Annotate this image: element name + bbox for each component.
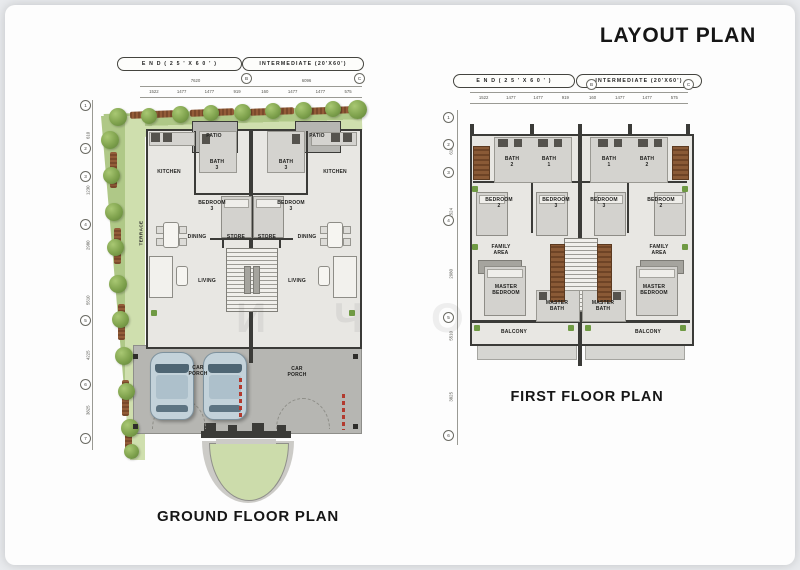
room-label-bedroom3: BEDROOM 3 bbox=[542, 197, 570, 210]
wall-stub bbox=[530, 124, 534, 136]
wardrobe bbox=[672, 146, 689, 180]
tree-icon bbox=[107, 239, 124, 256]
grid-bubble-4: 4 bbox=[443, 215, 454, 226]
bath-fixture bbox=[538, 139, 548, 147]
bath-fixture bbox=[554, 139, 562, 147]
interior-wall bbox=[194, 193, 251, 195]
room-label-master-bedroom: MASTER BEDROOM bbox=[640, 284, 668, 297]
balcony-slab bbox=[585, 344, 685, 360]
dimension-row-segments: 15221477147791916014771477575 bbox=[470, 95, 688, 101]
chair bbox=[179, 226, 187, 234]
room-label-store: STORE bbox=[258, 234, 276, 240]
tree-icon bbox=[348, 100, 367, 119]
bath-fixture bbox=[614, 139, 622, 147]
grid-bubble-2: 2 bbox=[443, 139, 454, 150]
dining-table bbox=[327, 222, 343, 248]
entrance-wall bbox=[252, 423, 264, 432]
tv-console bbox=[244, 266, 251, 294]
grid-bubble-b: B bbox=[586, 79, 597, 90]
grid-bubble-3: 3 bbox=[443, 167, 454, 178]
tree-icon bbox=[124, 444, 139, 459]
wardrobe bbox=[550, 244, 565, 302]
room-label-master-bath: MASTER BATH bbox=[592, 300, 614, 313]
room-label-bath3: BATH 3 bbox=[279, 159, 293, 172]
interior-wall bbox=[306, 131, 308, 195]
sofa bbox=[333, 256, 357, 298]
room-label-store: STORE bbox=[227, 234, 245, 240]
plant-icon bbox=[472, 186, 478, 192]
post bbox=[353, 424, 358, 429]
wardrobe bbox=[473, 146, 490, 180]
kitchen-appliance bbox=[331, 133, 340, 142]
wall-stub bbox=[470, 124, 474, 136]
room-label-master-bedroom: MASTER BEDROOM bbox=[492, 284, 520, 297]
room-label-family-area: FAMILY AREA bbox=[649, 244, 668, 257]
plant-icon bbox=[682, 244, 688, 250]
room-label-patio: PATIO bbox=[206, 133, 222, 139]
tree-icon bbox=[234, 104, 251, 121]
dining-table bbox=[163, 222, 179, 248]
entrance-wall bbox=[201, 431, 291, 438]
tree-icon bbox=[325, 101, 341, 117]
party-wall-stub bbox=[578, 342, 582, 366]
kitchen-appliance bbox=[151, 133, 160, 142]
room-label-bedroom3: BEDROOM 3 bbox=[198, 200, 226, 213]
dimension-line bbox=[140, 86, 362, 87]
tree-icon bbox=[118, 383, 135, 400]
room-label-living: LIVING bbox=[288, 278, 306, 284]
dimension-line bbox=[470, 92, 688, 93]
sofa bbox=[149, 256, 173, 298]
wall-stub bbox=[578, 124, 582, 136]
interior-wall bbox=[627, 183, 629, 233]
grid-bubble-5: 5 bbox=[443, 312, 454, 323]
tree-icon bbox=[172, 106, 189, 123]
grid-bubble-2: 2 bbox=[80, 143, 91, 154]
room-label-bedroom3: BEDROOM 3 bbox=[590, 197, 618, 210]
grid-bubble-7: 7 bbox=[80, 433, 91, 444]
room-label-patio: PATIO bbox=[309, 133, 325, 139]
car-icon bbox=[150, 352, 194, 420]
tv-console bbox=[253, 266, 260, 294]
tree-icon bbox=[115, 347, 133, 365]
interior-wall bbox=[531, 183, 533, 233]
kitchen-appliance bbox=[343, 133, 352, 142]
room-label-living: LIVING bbox=[198, 278, 216, 284]
grid-bubble-1: 1 bbox=[80, 100, 91, 111]
grid-bubble-c: C bbox=[683, 79, 694, 90]
layout-plan-sheet: LAYOUT PLAN И Ч О E N D ( 2 5 ' X 6 0 ' … bbox=[0, 0, 800, 570]
entrance-wall bbox=[228, 425, 237, 432]
tree-icon bbox=[109, 275, 127, 293]
bath-fixture bbox=[598, 139, 608, 147]
red-roof-line bbox=[239, 378, 242, 420]
lot-type-tag-end: E N D ( 2 5 ' X 6 0 ' ) bbox=[453, 74, 575, 88]
entrance-steps bbox=[216, 439, 276, 444]
page-title: LAYOUT PLAN bbox=[592, 24, 764, 48]
room-label-bedroom2: BEDROOM 2 bbox=[485, 197, 513, 210]
kitchen-appliance bbox=[163, 133, 172, 142]
room-label-bedroom2: BEDROOM 2 bbox=[647, 197, 675, 210]
tree-icon bbox=[112, 311, 129, 328]
room-label-kitchen: KITCHEN bbox=[323, 169, 347, 175]
chair bbox=[179, 238, 187, 246]
tree-icon bbox=[109, 108, 127, 126]
bath-fixture bbox=[498, 139, 508, 147]
grid-bubble-4: 4 bbox=[80, 219, 91, 230]
grid-bubble-3: 3 bbox=[80, 171, 91, 182]
room-label-bath2: BATH 2 bbox=[640, 156, 654, 169]
bath-fixture bbox=[292, 134, 300, 144]
interior-wall bbox=[252, 193, 308, 195]
lot-type-tag-end: E N D ( 2 5 ' X 6 0 ' ) bbox=[117, 57, 242, 71]
wall-stub bbox=[686, 124, 690, 136]
room-label-dining: DINING bbox=[298, 234, 317, 240]
room-label-car-porch: CAR PORCH bbox=[188, 365, 207, 378]
room-label-bath3: BATH 3 bbox=[210, 159, 224, 172]
coffee-table bbox=[176, 266, 188, 286]
grid-bubble-6: 6 bbox=[80, 379, 91, 390]
grid-line-vertical bbox=[457, 110, 458, 445]
bath-fixture bbox=[613, 292, 621, 300]
post bbox=[353, 354, 358, 359]
balcony-slab bbox=[477, 344, 577, 360]
plant-icon bbox=[585, 325, 591, 331]
room-label-balcony: BALCONY bbox=[501, 329, 527, 335]
plant-icon bbox=[680, 325, 686, 331]
room-label-bedroom3: BEDROOM 3 bbox=[277, 200, 305, 213]
post bbox=[133, 424, 138, 429]
dimension-line bbox=[470, 103, 688, 104]
lot-type-tag-intermediate: INTERMEDIATE (20'X60') bbox=[242, 57, 364, 71]
tree-icon bbox=[265, 103, 281, 119]
room-label-terrace: TERRACE bbox=[139, 220, 144, 245]
plant-icon bbox=[474, 325, 480, 331]
tree-icon bbox=[203, 105, 219, 121]
room-label-family-area: FAMILY AREA bbox=[491, 244, 510, 257]
bath-fixture bbox=[654, 139, 662, 147]
plan-caption-first: FIRST FLOOR PLAN bbox=[494, 389, 680, 405]
coffee-table bbox=[318, 266, 330, 286]
room-label-bath1: BATH 1 bbox=[602, 156, 616, 169]
plant-icon bbox=[682, 186, 688, 192]
tree-icon bbox=[295, 102, 312, 119]
interior-wall bbox=[470, 320, 690, 323]
room-label-bath1: BATH 1 bbox=[542, 156, 556, 169]
tree-icon bbox=[101, 131, 119, 149]
dimension-row-segments: 15221477147791916014771477575 bbox=[140, 89, 362, 95]
grid-bubble-6: 6 bbox=[443, 430, 454, 441]
grid-bubble-1: 1 bbox=[443, 112, 454, 123]
room-label-kitchen: KITCHEN bbox=[157, 169, 181, 175]
grid-line-vertical bbox=[92, 100, 93, 450]
plant-icon bbox=[568, 325, 574, 331]
grid-bubble-5: 5 bbox=[80, 315, 91, 326]
red-roof-line bbox=[342, 394, 345, 430]
chair bbox=[343, 238, 351, 246]
chair bbox=[343, 226, 351, 234]
tree-icon bbox=[141, 108, 157, 124]
plan-caption-ground: GROUND FLOOR PLAN bbox=[150, 508, 346, 525]
grid-bubble-c: C bbox=[354, 73, 365, 84]
room-label-car-porch: CAR PORCH bbox=[287, 366, 306, 379]
room-label-bath2: BATH 2 bbox=[505, 156, 519, 169]
plant-icon bbox=[349, 310, 355, 316]
party-wall-stub bbox=[249, 345, 253, 363]
wall-stub bbox=[628, 124, 632, 136]
tree-icon bbox=[103, 167, 120, 184]
grid-bubble-b: B bbox=[241, 73, 252, 84]
bath-fixture bbox=[514, 139, 522, 147]
dimension-line bbox=[140, 97, 362, 98]
bath-fixture bbox=[638, 139, 648, 147]
wardrobe bbox=[597, 244, 612, 302]
stairs bbox=[226, 248, 278, 312]
room-label-balcony: BALCONY bbox=[635, 329, 661, 335]
room-label-master-bath: MASTER BATH bbox=[546, 300, 568, 313]
plant-icon bbox=[472, 244, 478, 250]
tree-icon bbox=[105, 203, 123, 221]
room-label-dining: DINING bbox=[188, 234, 207, 240]
plant-icon bbox=[151, 310, 157, 316]
post bbox=[133, 354, 138, 359]
